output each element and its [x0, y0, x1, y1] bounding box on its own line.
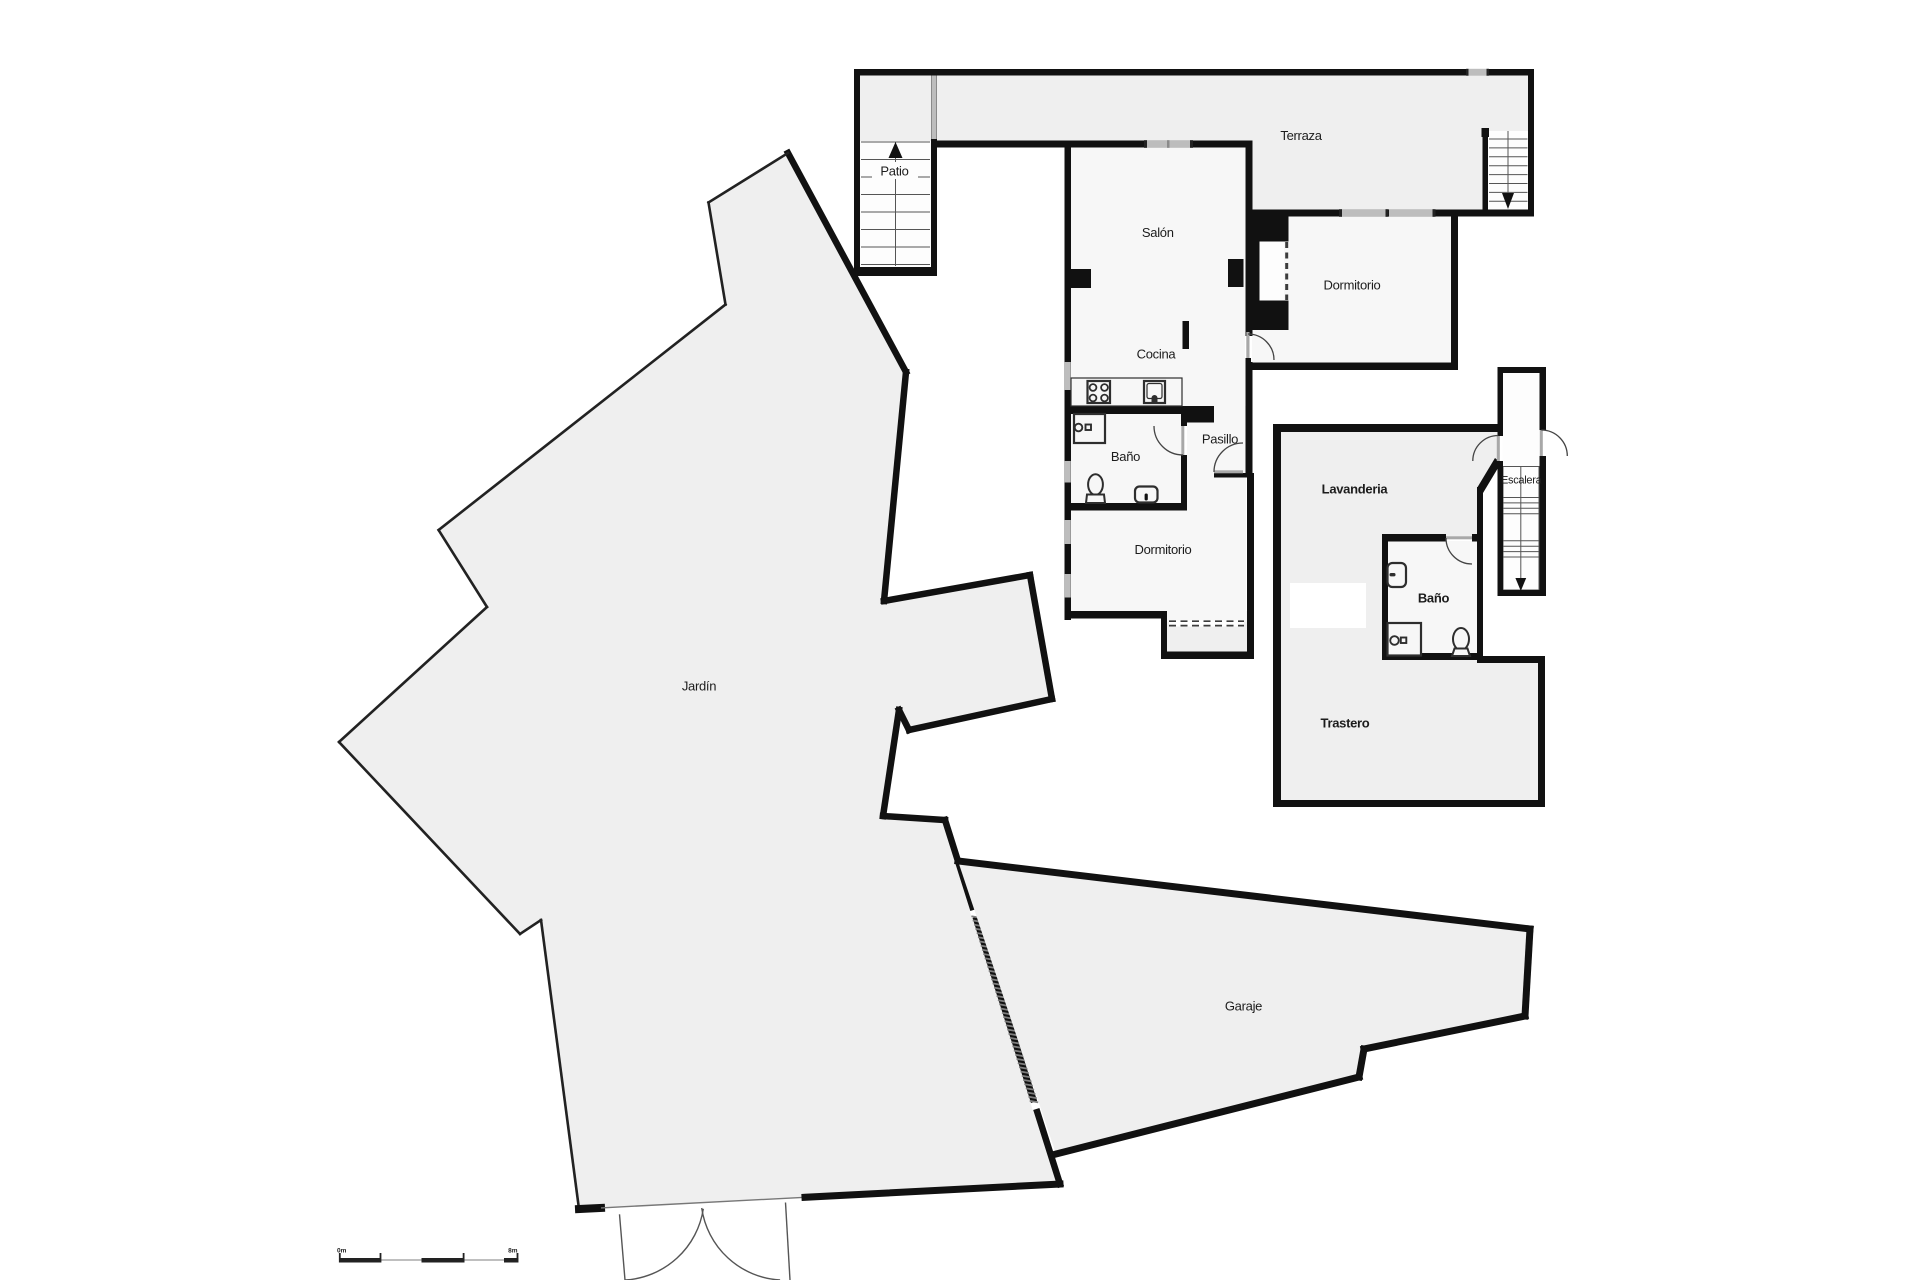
svg-text:Salón: Salón — [1142, 225, 1174, 240]
svg-text:Patio: Patio — [880, 164, 908, 179]
svg-text:Jardín: Jardín — [682, 679, 716, 694]
svg-text:Dormitorio: Dormitorio — [1135, 542, 1192, 557]
svg-text:Trastero: Trastero — [1321, 716, 1370, 731]
svg-text:8m: 8m — [508, 1248, 518, 1255]
svg-text:Pasillo: Pasillo — [1202, 432, 1238, 447]
svg-text:Garaje: Garaje — [1225, 999, 1262, 1014]
svg-text:Escalera: Escalera — [1501, 475, 1543, 487]
svg-text:Terraza: Terraza — [1280, 128, 1322, 143]
svg-text:Cocina: Cocina — [1137, 347, 1177, 362]
svg-text:0m: 0m — [337, 1248, 347, 1255]
svg-text:Baño: Baño — [1111, 449, 1140, 464]
svg-text:Baño: Baño — [1418, 591, 1450, 606]
svg-text:Dormitorio: Dormitorio — [1324, 278, 1381, 293]
svg-text:Lavanderia: Lavanderia — [1322, 482, 1389, 497]
